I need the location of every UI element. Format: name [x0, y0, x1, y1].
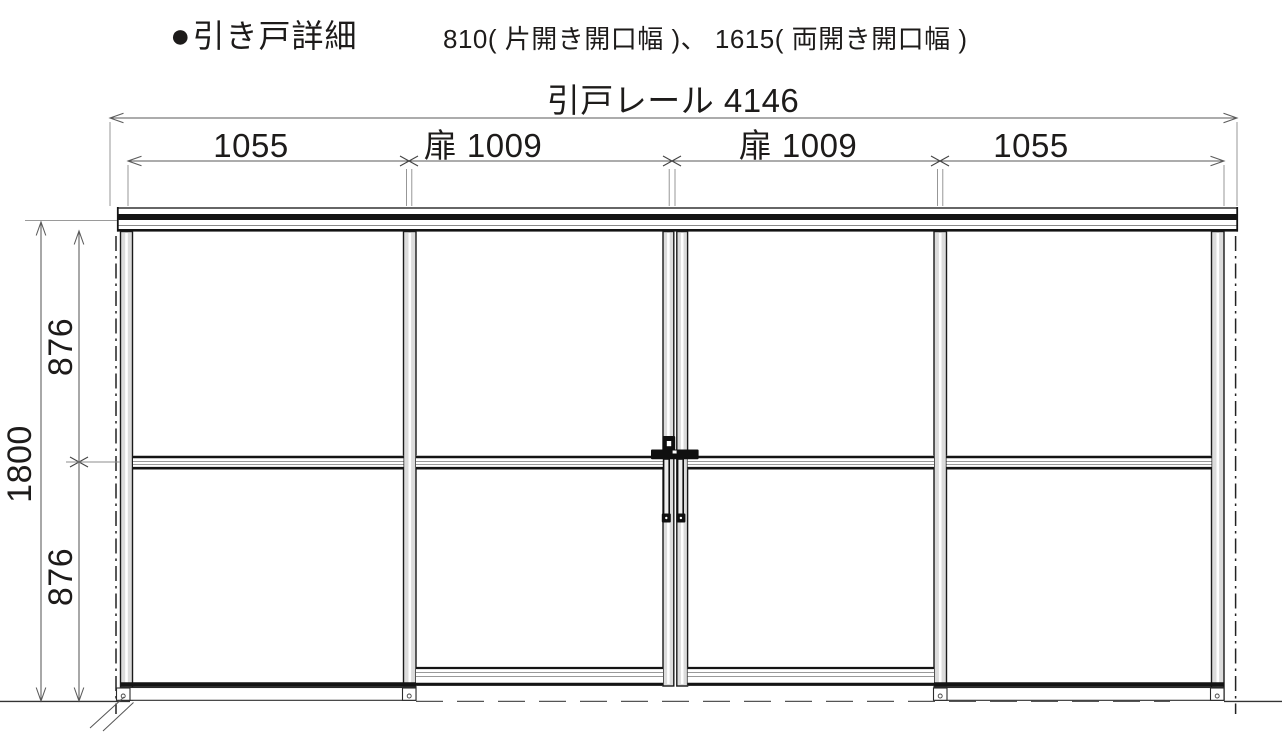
pull-bar	[678, 459, 684, 515]
height-dimensions	[25, 220, 120, 701]
segment-dimension-label: 1055	[213, 129, 288, 162]
middle-rail-segment	[416, 456, 663, 470]
opening-width-note: 810( 片開き開口幅 )、 1615( 両開き開口幅 )	[443, 26, 967, 52]
fixed-bottom-rail-left	[117, 685, 417, 701]
middle-rail-segment	[947, 456, 1212, 470]
pull-bar	[664, 459, 670, 515]
middle-rail-segment	[688, 456, 934, 470]
drawing-title: ● 引き戸詳細	[170, 19, 358, 53]
title-text: 引き戸詳細	[193, 20, 358, 52]
lower-height-label: 876	[44, 548, 78, 606]
door-bottom-rail	[416, 667, 663, 686]
sliding-door-detail-drawing: ● 引き戸詳細 810( 片開き開口幅 )、 1615( 両開き開口幅 ) 引戸…	[0, 0, 1282, 738]
segment-dimension-label: 扉 1009	[739, 129, 858, 162]
upper-height-label: 876	[44, 318, 78, 376]
rail-dimension-label: 引戸レール 4146	[547, 84, 800, 117]
fixed-bottom-rail-right	[934, 685, 1225, 701]
total-height-label: 1800	[3, 425, 37, 503]
segment-dimension-label: 扉 1009	[424, 129, 543, 162]
door-bottom-rails	[416, 667, 934, 686]
segment-dimension-label: 1055	[993, 129, 1068, 162]
door-bottom-rail	[688, 667, 934, 686]
bullet-marker-icon: ●	[170, 19, 192, 53]
middle-rail-segment	[133, 456, 404, 470]
top-track	[117, 207, 1238, 232]
handle-hardware	[651, 436, 699, 523]
